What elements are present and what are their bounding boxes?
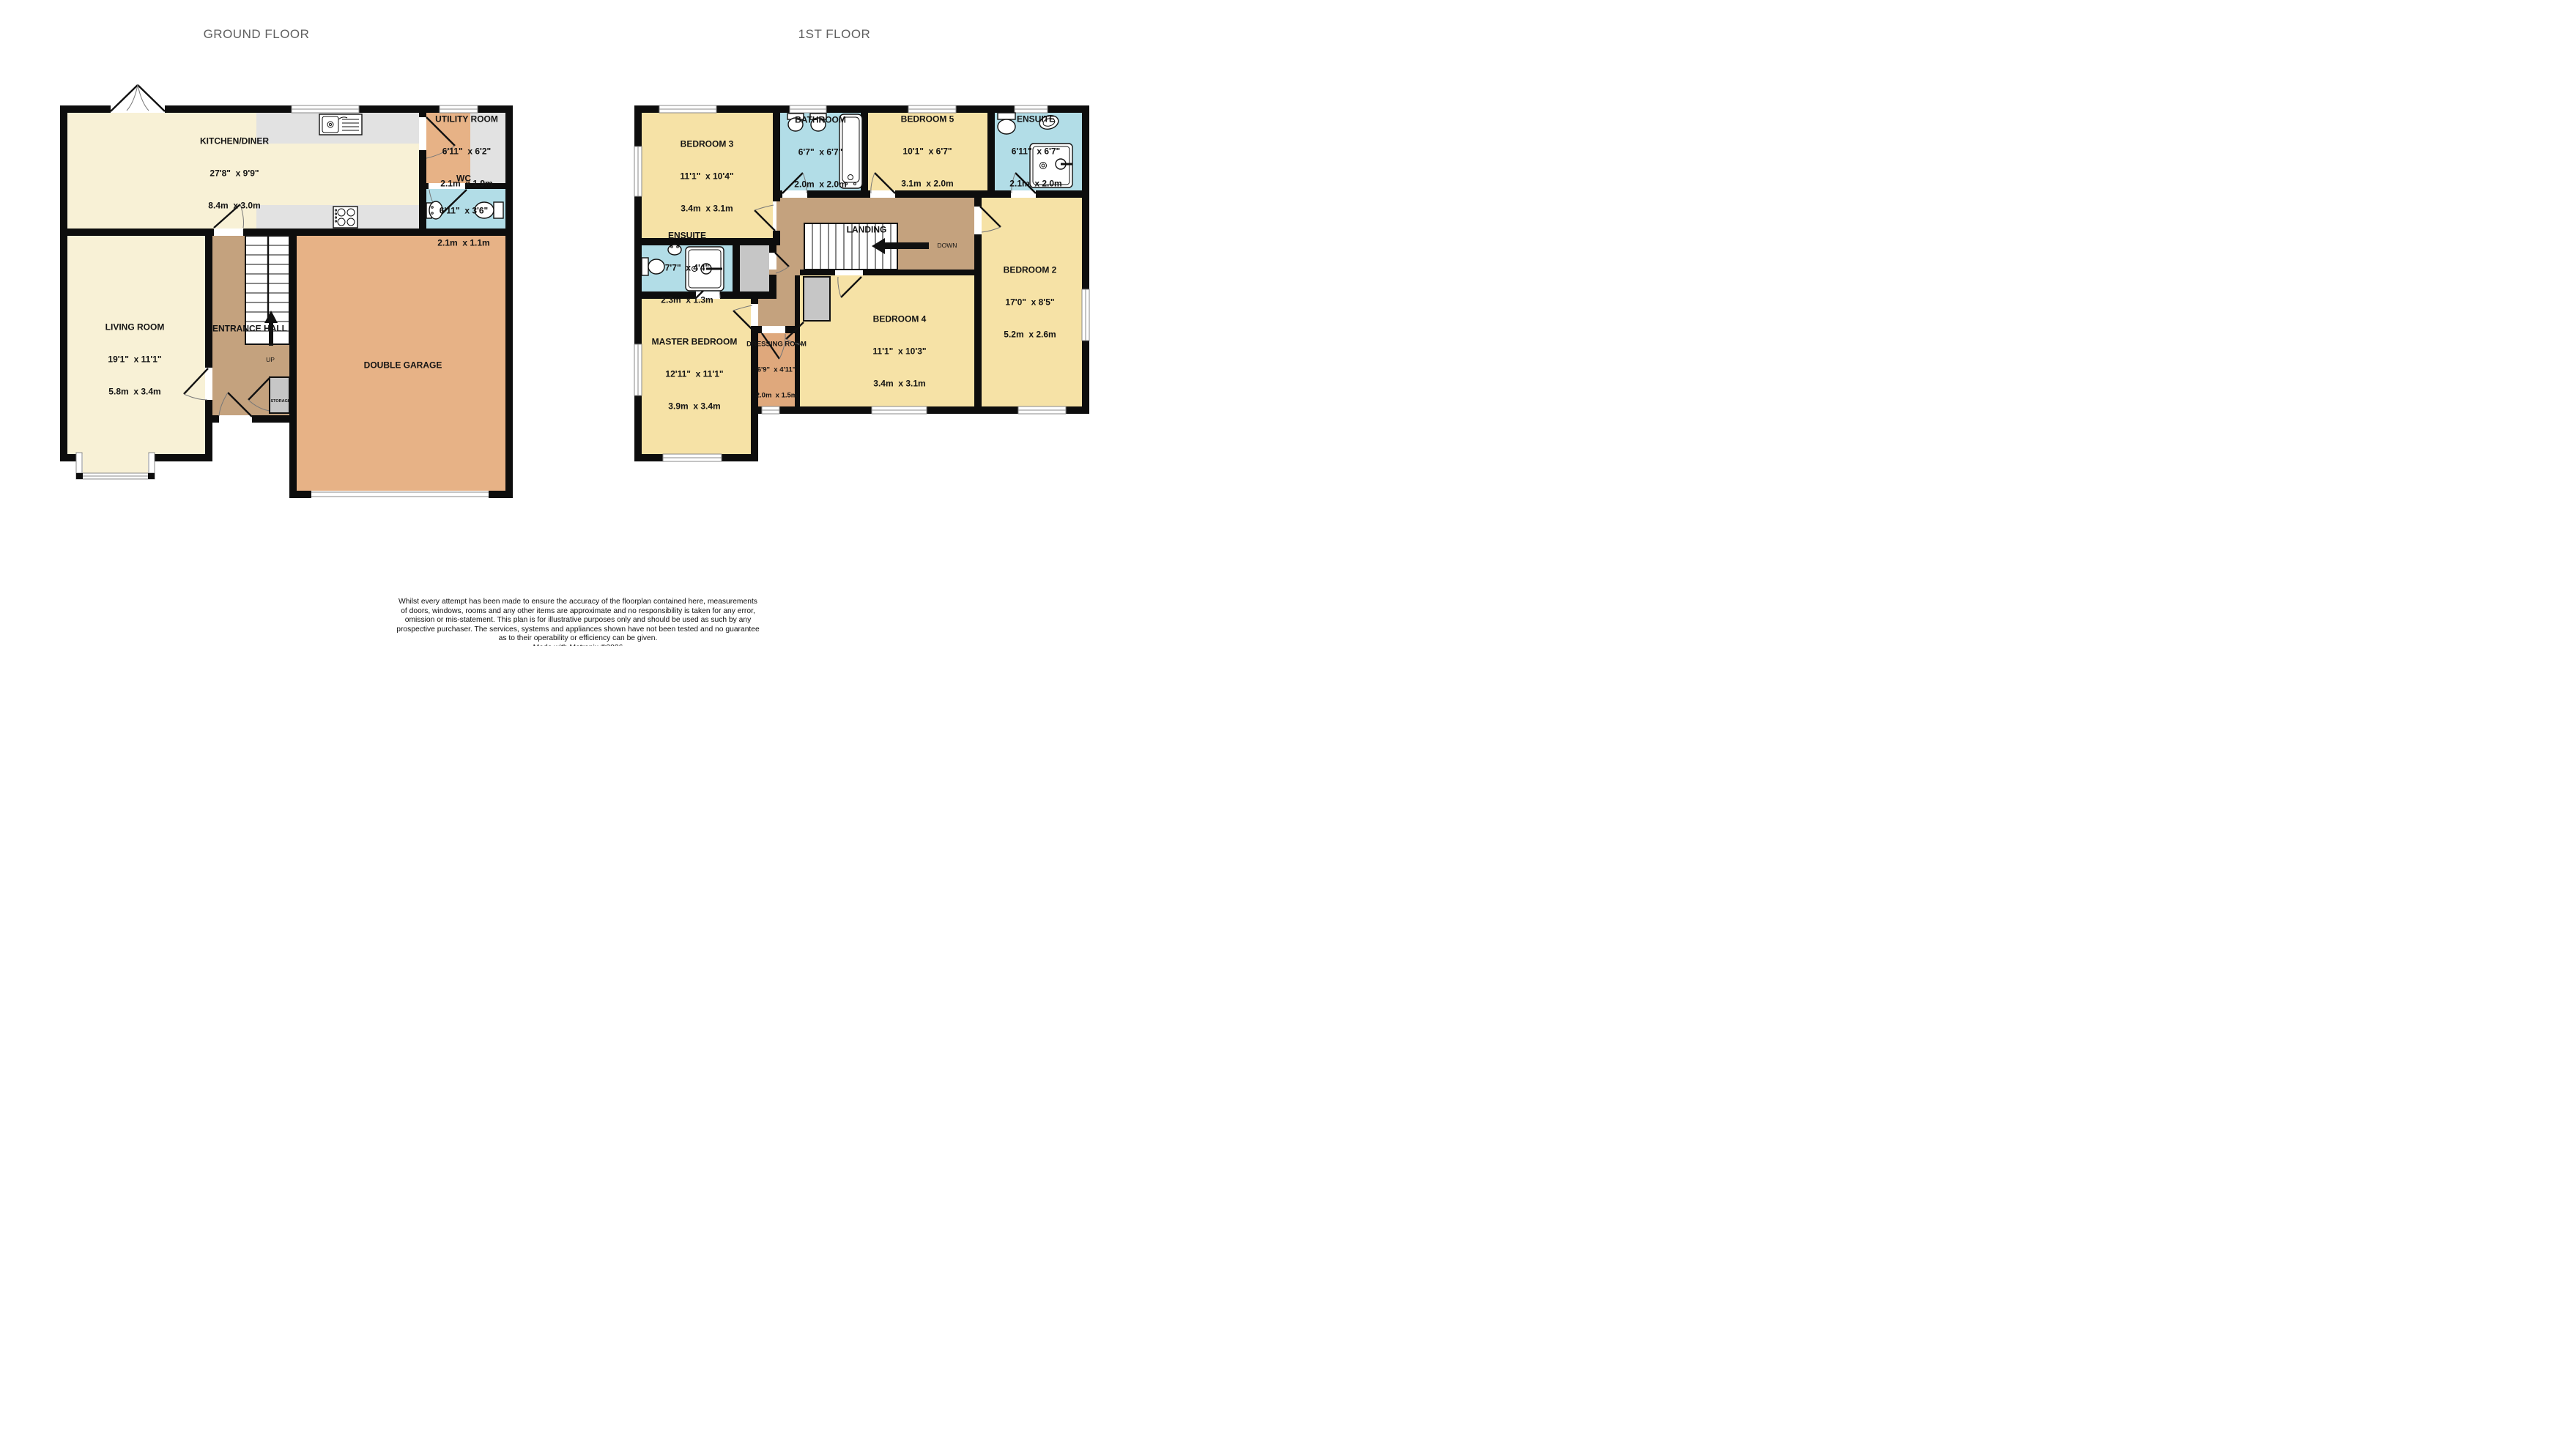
room-label-bed4: BEDROOM 4 11'1" x 10'3" 3.4m x 3.1m [872, 293, 926, 411]
window-bed3-top [659, 105, 716, 113]
room-label-bed2: BEDROOM 2 17'0" x 8'5" 5.2m x 2.6m [1004, 244, 1057, 362]
room-name: ENSUITE [661, 231, 713, 242]
window-master-bottom [663, 454, 722, 461]
hob-icon [333, 207, 357, 228]
garage-door-opening [311, 491, 489, 498]
room-size-metric: 3.9m x 3.4m [652, 401, 738, 412]
room-size-metric: 3.4m x 3.1m [872, 379, 926, 390]
room-label-landing: LANDING [847, 203, 887, 256]
room-name: LANDING [847, 225, 887, 236]
french-doors-kitchen [111, 85, 165, 111]
understairs-closet [804, 277, 830, 321]
room-name: BEDROOM 4 [872, 314, 926, 325]
room-size-metric: 5.2m x 2.6m [1004, 330, 1057, 341]
room-size-metric: 2.1m x 1.1m [437, 238, 489, 249]
room-label-bed5: BEDROOM 5 10'1" x 6'7" 3.1m x 2.0m [901, 93, 954, 211]
room-name: BEDROOM 2 [1004, 265, 1057, 276]
room-size-imperial: 19'1" x 11'1" [105, 354, 165, 365]
stairs-down-label: DOWN [938, 242, 957, 249]
stairs-up-label: UP [266, 356, 275, 363]
room-size-imperial: 11'1" x 10'3" [872, 346, 926, 357]
room-name: KITCHEN/DINER [200, 136, 269, 147]
room-name: BEDROOM 3 [680, 139, 733, 150]
room-label-living: LIVING ROOM 19'1" x 11'1" 5.8m x 3.4m [105, 301, 165, 419]
room-size-imperial: 6'11" x 6'7" [1009, 146, 1061, 157]
window-master-left [634, 344, 642, 395]
room-label-wc: WC 6'11" x 3'6" 2.1m x 1.1m [437, 152, 489, 270]
room-name: BEDROOM 5 [901, 114, 954, 125]
window-kitchen-top [292, 105, 359, 113]
room-label-dressing: DRESSING ROOM 6'9" x 4'11" 2.0m x 1.5m [746, 323, 807, 416]
window-bed3-left [634, 146, 642, 196]
room-size-imperial: 11'1" x 10'4" [680, 171, 733, 182]
room-size-imperial: 27'8" x 9'9" [200, 168, 269, 179]
room-size-imperial: 12'11" x 11'1" [652, 369, 738, 380]
room-size-imperial: 6'11" x 3'6" [437, 206, 489, 217]
room-size-metric: 3.1m x 2.0m [901, 179, 954, 190]
room-size-metric: 2.1m x 2.0m [1009, 179, 1061, 190]
window-bed2-right [1082, 289, 1089, 341]
room-label-bathroom: BATHROOM 6'7" x 6'7" 2.0m x 2.0m [794, 94, 846, 212]
floorplan-drawing [0, 0, 1132, 646]
room-size-imperial: 10'1" x 6'7" [901, 146, 954, 157]
room-name: ENSUITE [1009, 114, 1061, 125]
room-label-master: MASTER BEDROOM 12'11" x 11'1" 3.9m x 3.4… [652, 316, 738, 434]
room-name: BATHROOM [794, 115, 846, 126]
window-bed2-bottom [1018, 406, 1066, 414]
room-name: DRESSING ROOM [746, 340, 807, 349]
room-size-imperial: 6'7" x 6'7" [794, 147, 846, 158]
room-name: DOUBLE GARAGE [364, 360, 442, 371]
room-name: LIVING ROOM [105, 322, 165, 333]
room-size-metric: 5.8m x 3.4m [105, 387, 165, 398]
room-label-garage: DOUBLE GARAGE [364, 338, 442, 392]
room-label-entrance-hall: ENTRANCE HALL [212, 302, 287, 355]
room-size-metric: 2.0m x 2.0m [794, 179, 846, 190]
room-name: UTILITY ROOM [435, 114, 498, 125]
kitchen-sink-icon [319, 114, 362, 135]
room-label-ensuite-left: ENSUITE 7'7" x 4'4" 2.3m x 1.3m [661, 209, 713, 327]
room-name: ENTRANCE HALL [212, 324, 287, 335]
room-size-imperial: 17'0" x 8'5" [1004, 297, 1057, 308]
storage-label: STORAGE [270, 399, 290, 404]
floorplan-page: GROUND FLOOR 1ST FLOOR KITCHEN/DINER 27'… [0, 0, 1132, 646]
room-size-imperial: 6'9" x 4'11" [746, 365, 807, 374]
room-label-ensuite-tr: ENSUITE 6'11" x 6'7" 2.1m x 2.0m [1009, 93, 1061, 211]
room-size-metric: 2.0m x 1.5m [746, 391, 807, 400]
room-size-metric: 8.4m x 3.0m [200, 201, 269, 212]
room-name: WC [437, 174, 489, 185]
room-name: MASTER BEDROOM [652, 337, 738, 348]
room-label-kitchen-diner: KITCHEN/DINER 27'8" x 9'9" 8.4m x 3.0m [200, 115, 269, 233]
room-size-metric: 2.3m x 1.3m [661, 295, 713, 306]
room-size-imperial: 7'7" x 4'4" [661, 263, 713, 274]
storage-closet [270, 377, 289, 413]
